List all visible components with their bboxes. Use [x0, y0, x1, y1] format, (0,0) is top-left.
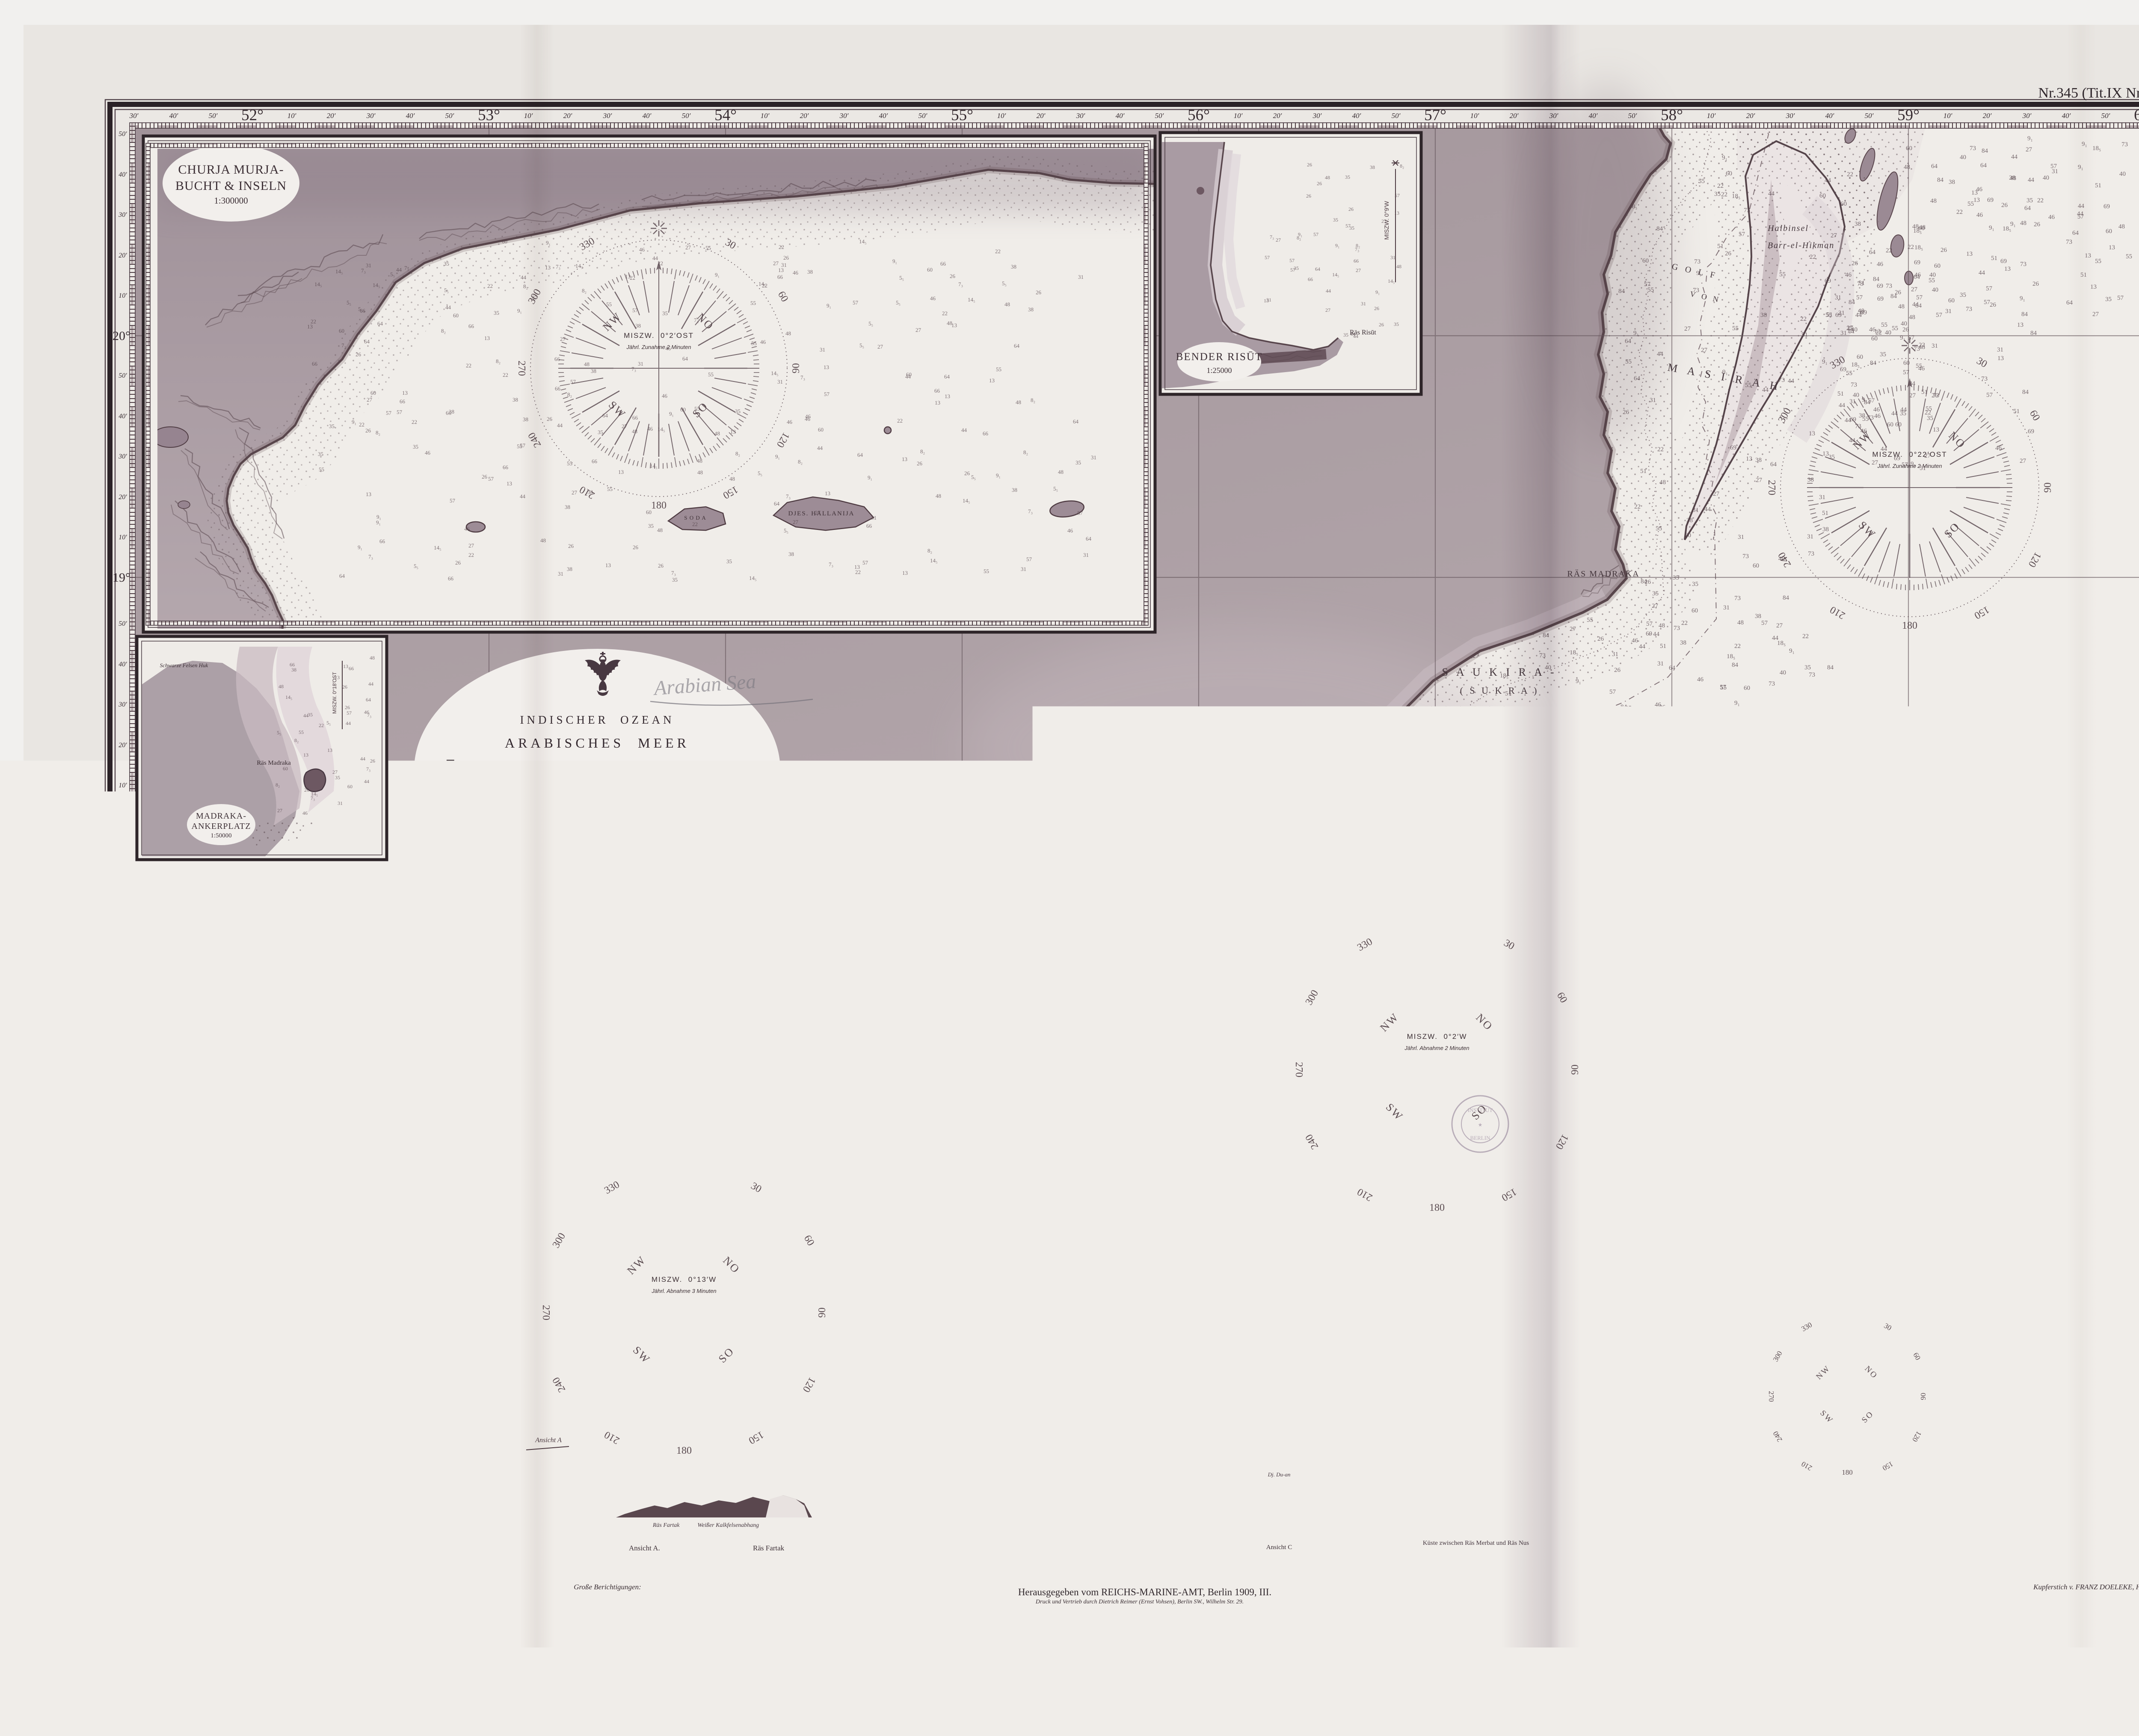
svg-text:53°: 53°: [478, 1556, 500, 1573]
svg-text:9₁: 9₁: [1158, 1024, 1164, 1031]
svg-text:51: 51: [454, 1439, 460, 1446]
svg-text:26: 26: [482, 473, 488, 480]
svg-text:13: 13: [902, 456, 907, 462]
svg-text:31: 31: [1692, 507, 1699, 514]
svg-text:57: 57: [1761, 620, 1768, 627]
svg-text:9₁: 9₁: [1989, 225, 1994, 231]
svg-text:9₁: 9₁: [1335, 243, 1339, 248]
svg-text:35: 35: [726, 558, 732, 565]
svg-text:57: 57: [2117, 295, 2124, 302]
svg-text:64: 64: [1869, 249, 1876, 256]
svg-text:22: 22: [1790, 1362, 1795, 1368]
svg-text:31: 31: [960, 1156, 966, 1163]
svg-text:57: 57: [824, 391, 830, 397]
svg-text:38: 38: [1807, 476, 1814, 483]
svg-text:84: 84: [898, 1211, 904, 1218]
svg-text:13: 13: [1973, 197, 1980, 204]
svg-text:64: 64: [1770, 461, 1777, 468]
svg-text:31: 31: [1932, 343, 1938, 349]
svg-text:84: 84: [1158, 1118, 1164, 1124]
svg-text:44: 44: [557, 422, 563, 429]
svg-text:84: 84: [1873, 276, 1880, 283]
svg-text:22: 22: [503, 372, 508, 378]
svg-text:27: 27: [1831, 232, 1837, 239]
svg-text:48: 48: [1058, 469, 1064, 475]
svg-text:51: 51: [1837, 390, 1844, 397]
svg-text:27: 27: [955, 1136, 962, 1143]
svg-text:13: 13: [1822, 450, 1829, 457]
svg-text:57: 57: [1868, 397, 1875, 404]
svg-text:9₁: 9₁: [2020, 295, 2025, 302]
svg-text:13: 13: [1967, 1414, 1972, 1420]
svg-text:35: 35: [1673, 574, 1679, 581]
svg-text:B U C H T: B U C H T: [1416, 730, 1499, 742]
svg-text:57: 57: [1096, 994, 1103, 1001]
svg-text:44: 44: [1762, 387, 1769, 393]
svg-text:1:300000: 1:300000: [214, 195, 248, 206]
svg-text:64: 64: [1216, 944, 1223, 951]
svg-text:64: 64: [1216, 1115, 1223, 1121]
svg-text:13: 13: [1928, 1335, 1933, 1341]
svg-text:38: 38: [1822, 526, 1829, 533]
svg-text:90: 90: [2042, 482, 2053, 493]
svg-text:44: 44: [364, 778, 369, 784]
svg-text:66: 66: [554, 356, 560, 362]
svg-text:84: 84: [852, 1213, 859, 1220]
svg-text:73: 73: [610, 1339, 616, 1346]
svg-text:10′: 10′: [1707, 1561, 1716, 1569]
svg-text:40′: 40′: [879, 112, 888, 120]
svg-text:66: 66: [1875, 1143, 1881, 1149]
svg-text:30′: 30′: [1786, 1561, 1795, 1569]
svg-text:60: 60: [1744, 685, 1750, 692]
svg-text:22: 22: [468, 552, 474, 558]
svg-text:31: 31: [1390, 254, 1395, 260]
svg-text:26: 26: [342, 684, 347, 690]
svg-text:30′: 30′: [839, 1561, 849, 1569]
svg-text:46: 46: [793, 269, 799, 276]
svg-text:48: 48: [1737, 619, 1744, 626]
svg-text:40: 40: [911, 1271, 918, 1278]
svg-text:7₃: 7₃: [1882, 1269, 1887, 1275]
svg-text:31: 31: [443, 1385, 450, 1392]
svg-text:40′: 40′: [1352, 1561, 1361, 1569]
svg-text:9₁: 9₁: [1633, 330, 1639, 337]
svg-text:30′: 30′: [603, 1561, 612, 1569]
svg-text:Bender Risut: Bender Risut: [723, 1071, 766, 1079]
svg-text:MADRAKA-: MADRAKA-: [196, 811, 246, 821]
svg-text:Räs: Räs: [163, 937, 173, 944]
svg-text:Halbinsel: Halbinsel: [1767, 224, 1809, 233]
svg-text:55: 55: [996, 366, 1001, 373]
svg-text:Herausgegeben vom REICHS-MARIN: Herausgegeben vom REICHS-MARINE-AMT, Ber…: [1018, 1587, 1271, 1597]
svg-text:13: 13: [989, 377, 995, 384]
svg-text:44: 44: [1253, 1124, 1260, 1130]
svg-text:20′: 20′: [119, 742, 127, 749]
svg-text:Bandar: Bandar: [163, 946, 182, 953]
svg-text:22: 22: [1346, 674, 1352, 680]
svg-text:50′: 50′: [445, 1561, 454, 1569]
svg-text:60: 60: [818, 426, 824, 433]
svg-text:57: 57: [488, 476, 494, 482]
svg-text:40: 40: [1960, 154, 1966, 161]
svg-text:REICHS-MARINE-AMT: REICHS-MARINE-AMT: [281, 1640, 367, 1647]
svg-text:55: 55: [607, 486, 613, 492]
svg-text:1:50000: 1:50000: [210, 832, 231, 839]
svg-text:66: 66: [1795, 1458, 1800, 1464]
svg-text:38: 38: [999, 1193, 1005, 1200]
svg-text:60: 60: [1596, 744, 1603, 751]
svg-text:46: 46: [1075, 1000, 1082, 1007]
svg-text:S O D A: S O D A: [684, 515, 706, 521]
svg-text:84: 84: [1621, 704, 1627, 710]
svg-text:55: 55: [1723, 756, 1730, 763]
svg-text:35: 35: [946, 1191, 953, 1198]
svg-text:60: 60: [1049, 1178, 1055, 1185]
svg-text:7₃: 7₃: [786, 493, 791, 500]
svg-text:22: 22: [1657, 446, 1664, 453]
svg-text:MISZW. 0°18′OST: MISZW. 0°18′OST: [332, 671, 338, 713]
svg-text:55: 55: [396, 1166, 403, 1173]
svg-text:27: 27: [572, 489, 578, 496]
svg-text:44: 44: [346, 720, 351, 726]
svg-text:22: 22: [1802, 633, 1809, 640]
svg-text:Abkürzungen und Sprachliches: Abkürzungen und Sprachliches: [144, 900, 230, 908]
svg-text:51: 51: [1822, 510, 1828, 517]
svg-text:44: 44: [1747, 707, 1754, 714]
svg-text:10′: 10′: [1470, 112, 1479, 120]
svg-text:64: 64: [1092, 1028, 1099, 1035]
svg-text:38: 38: [1144, 1106, 1150, 1112]
svg-text:10′: 10′: [119, 1511, 127, 1518]
svg-text:64: 64: [944, 373, 950, 380]
svg-text:48: 48: [1667, 722, 1673, 729]
svg-text:48: 48: [1325, 174, 1330, 180]
svg-text:48: 48: [1614, 781, 1621, 788]
svg-text:44: 44: [360, 756, 365, 762]
svg-text:38: 38: [1822, 1398, 1827, 1404]
svg-text:90: 90: [817, 1307, 828, 1318]
svg-text:18₅: 18₅: [1183, 1135, 1192, 1142]
svg-text:27: 27: [1909, 392, 1916, 399]
svg-text:22: 22: [412, 419, 417, 425]
svg-text:55: 55: [931, 1112, 937, 1118]
svg-text:9₁: 9₁: [715, 272, 720, 278]
svg-text:35: 35: [1344, 645, 1350, 652]
svg-text:13: 13: [605, 562, 611, 568]
svg-text:14₅: 14₅: [1854, 1128, 1861, 1134]
svg-text:38: 38: [567, 566, 572, 572]
svg-text:38: 38: [1363, 804, 1370, 811]
svg-text:9₁: 9₁: [1789, 648, 1795, 654]
svg-text:59°: 59°: [1897, 1556, 1920, 1573]
svg-text:30′: 30′: [1786, 112, 1795, 120]
svg-text:44: 44: [961, 427, 967, 433]
svg-text:13: 13: [1449, 728, 1456, 735]
svg-text:35: 35: [444, 260, 449, 267]
svg-text:60: 60: [658, 1328, 665, 1334]
svg-text:40: 40: [2119, 171, 2126, 177]
svg-text:55: 55: [1745, 382, 1751, 389]
svg-text:44: 44: [905, 373, 911, 380]
svg-text:9₁: 9₁: [1257, 1153, 1262, 1160]
svg-text:84: 84: [1618, 288, 1625, 295]
svg-text:48: 48: [1207, 1180, 1214, 1187]
svg-text:40′: 40′: [1116, 112, 1125, 120]
svg-text:38: 38: [1755, 457, 1762, 464]
svg-text:46: 46: [464, 526, 470, 532]
svg-text:48: 48: [1028, 1032, 1034, 1039]
svg-text:51: 51: [1261, 1211, 1267, 1218]
svg-text:9₁: 9₁: [486, 1243, 492, 1250]
svg-text:18₅: 18₅: [1777, 640, 1786, 647]
svg-text:44: 44: [1768, 190, 1775, 197]
svg-text:35: 35: [1333, 217, 1338, 223]
svg-text:48: 48: [1961, 1285, 1966, 1291]
svg-text:27: 27: [277, 807, 282, 813]
svg-text:40′: 40′: [1825, 1561, 1834, 1569]
svg-text:26: 26: [658, 562, 664, 569]
svg-text:55: 55: [1846, 370, 1852, 377]
svg-text:40′: 40′: [1825, 112, 1834, 120]
svg-text:51: 51: [1034, 1326, 1040, 1333]
svg-text:35: 35: [1343, 332, 1348, 338]
svg-text:30′: 30′: [839, 112, 849, 120]
svg-text:84: 84: [1195, 1128, 1202, 1135]
svg-text:35: 35: [648, 523, 654, 529]
svg-text:10′: 10′: [761, 1561, 770, 1569]
svg-text:46: 46: [495, 1207, 502, 1214]
svg-text:31: 31: [428, 1445, 434, 1452]
svg-text:14₅: 14₅: [285, 694, 292, 700]
svg-text:44: 44: [635, 1315, 642, 1322]
svg-text:13: 13: [1363, 687, 1370, 694]
svg-text:30′: 30′: [366, 1561, 376, 1569]
svg-text:55: 55: [387, 1239, 394, 1246]
svg-text:73: 73: [1778, 377, 1785, 384]
svg-text:66: 66: [592, 458, 598, 464]
svg-text:20′: 20′: [1983, 112, 1992, 120]
svg-text:46: 46: [760, 339, 766, 345]
svg-text:13: 13: [1821, 1180, 1826, 1186]
svg-text:10′: 10′: [1234, 112, 1243, 120]
svg-text:38: 38: [1751, 742, 1758, 749]
svg-text:30′: 30′: [118, 211, 127, 219]
svg-text:7₃: 7₃: [368, 553, 373, 560]
svg-text:26: 26: [1902, 326, 1909, 333]
svg-text:40′: 40′: [119, 661, 127, 668]
svg-text:73: 73: [1052, 940, 1058, 946]
svg-text:26: 26: [950, 273, 956, 279]
svg-text:20′: 20′: [119, 1470, 127, 1478]
svg-text:48: 48: [1659, 479, 1666, 486]
svg-text:30′: 30′: [603, 112, 612, 120]
svg-text:7₃: 7₃: [1355, 246, 1359, 252]
svg-text:57: 57: [1676, 1216, 1683, 1223]
svg-text:20′: 20′: [1037, 112, 1046, 120]
svg-text:26: 26: [1614, 667, 1621, 674]
svg-text:64: 64: [460, 1229, 467, 1236]
svg-text:55: 55: [708, 371, 714, 378]
svg-text:73: 73: [1320, 1250, 1327, 1257]
svg-text:64: 64: [1323, 765, 1330, 772]
svg-text:20′: 20′: [563, 1561, 572, 1569]
svg-text:31: 31: [1945, 308, 1952, 315]
svg-text:27: 27: [2020, 458, 2026, 464]
svg-text:64: 64: [1067, 1022, 1074, 1029]
svg-text:13: 13: [366, 491, 371, 497]
svg-text:14₅: 14₅: [758, 281, 766, 287]
svg-text:22: 22: [1681, 620, 1688, 627]
svg-text:10′: 10′: [1943, 1561, 1952, 1569]
svg-text:69: 69: [1468, 802, 1475, 809]
svg-text:8₂: 8₂: [798, 458, 803, 465]
svg-text:40′: 40′: [119, 1148, 127, 1156]
svg-text:46: 46: [1632, 637, 1638, 644]
svg-text:48: 48: [1919, 344, 1925, 351]
svg-text:7₃: 7₃: [1878, 1211, 1883, 1217]
svg-text:46: 46: [1821, 1200, 1826, 1206]
svg-text:35: 35: [2105, 296, 2112, 303]
svg-text:57: 57: [1132, 1349, 1138, 1356]
svg-text:18₅: 18₅: [1141, 1099, 1149, 1106]
svg-text:27: 27: [793, 519, 799, 525]
svg-text:26: 26: [1307, 162, 1312, 168]
svg-text:31: 31: [1228, 1166, 1235, 1173]
svg-text:8₂: 8₂: [276, 782, 280, 788]
svg-text:27: 27: [1276, 237, 1281, 243]
svg-text:46: 46: [928, 1153, 935, 1160]
svg-text:30′: 30′: [366, 112, 376, 120]
svg-text:13: 13: [824, 364, 829, 370]
svg-text:18₅: 18₅: [1656, 730, 1665, 736]
svg-text:69: 69: [1737, 758, 1743, 765]
svg-text:40′: 40′: [119, 171, 127, 178]
svg-text:35: 35: [1294, 265, 1299, 271]
svg-text:60: 60: [1060, 1200, 1067, 1207]
svg-text:44: 44: [1657, 351, 1664, 358]
svg-text:57: 57: [1345, 223, 1351, 229]
svg-text:7₃: 7₃: [361, 267, 366, 274]
svg-text:10′: 10′: [119, 782, 127, 789]
svg-text:8₂: 8₂: [735, 450, 740, 457]
svg-text:69: 69: [1105, 1176, 1111, 1183]
svg-text:9₁: 9₁: [1862, 1231, 1866, 1237]
svg-text:58°: 58°: [1661, 106, 1683, 124]
svg-text:13: 13: [506, 1200, 513, 1207]
svg-text:30′: 30′: [118, 701, 127, 708]
svg-text:31: 31: [820, 346, 825, 353]
svg-text:Für das Land- u. Seegebiet:: Für das Land- u. Seegebiet:: [144, 879, 219, 886]
svg-text:73: 73: [1970, 145, 1976, 152]
svg-text:48: 48: [1120, 1149, 1126, 1156]
svg-text:60: 60: [1642, 257, 1649, 264]
svg-text:9₁: 9₁: [1811, 1216, 1815, 1222]
svg-text:270: 270: [1293, 1062, 1304, 1077]
svg-text:44: 44: [396, 266, 402, 273]
svg-text:Djes.Kablija: Djes.Kablija: [1258, 945, 1290, 952]
svg-text:31: 31: [638, 361, 643, 367]
svg-text:22: 22: [1886, 247, 1892, 254]
svg-text:51: 51: [1152, 948, 1159, 955]
svg-text:8₂: 8₂: [496, 358, 501, 364]
svg-text:40′: 40′: [119, 413, 127, 420]
svg-text:31: 31: [1840, 330, 1847, 337]
svg-text:14₅: 14₅: [963, 497, 970, 504]
svg-text:35: 35: [1880, 351, 1886, 358]
svg-text:57: 57: [1609, 689, 1616, 695]
svg-text:35: 35: [1793, 1127, 1798, 1133]
svg-text:84: 84: [411, 1237, 418, 1244]
svg-text:38: 38: [291, 667, 296, 673]
svg-text:31: 31: [1366, 621, 1372, 627]
svg-text:27: 27: [367, 396, 373, 403]
svg-text:73: 73: [1173, 1346, 1179, 1353]
svg-text:15°: 15°: [113, 1547, 130, 1562]
svg-text:BENDER RISŪT: BENDER RISŪT: [1176, 351, 1262, 363]
svg-text:9₁: 9₁: [376, 519, 381, 526]
svg-text:46: 46: [662, 393, 668, 399]
svg-text:64: 64: [1021, 963, 1028, 970]
svg-text:26: 26: [926, 1377, 933, 1384]
svg-text:31: 31: [1612, 651, 1618, 658]
svg-text:31: 31: [1091, 454, 1096, 461]
svg-text:40′: 40′: [1352, 112, 1361, 120]
svg-text:46: 46: [1845, 272, 1852, 278]
svg-text:40: 40: [1932, 287, 1938, 293]
svg-text:40: 40: [2043, 174, 2049, 181]
svg-text:51: 51: [1717, 243, 1724, 250]
svg-text:Acc No : M2006 - 00315 - BL: Acc No : M2006 - 00315 - BL: [1986, 1676, 2139, 1697]
svg-text:20′: 20′: [119, 1229, 127, 1236]
svg-text:48: 48: [1016, 399, 1021, 405]
svg-text:22: 22: [1800, 316, 1807, 322]
svg-text:51: 51: [1629, 1221, 1635, 1227]
svg-text:38: 38: [1680, 639, 1686, 646]
svg-text:64: 64: [1409, 678, 1416, 685]
svg-text:35: 35: [335, 775, 340, 781]
svg-text:69: 69: [1253, 1289, 1259, 1295]
svg-text:27: 27: [468, 542, 474, 549]
svg-text:64: 64: [1634, 375, 1641, 382]
svg-text:38: 38: [1028, 306, 1034, 313]
svg-text:26: 26: [958, 1095, 965, 1102]
svg-text:7₃: 7₃: [800, 374, 805, 381]
svg-text:35: 35: [1086, 969, 1092, 976]
svg-text:53°: 53°: [478, 106, 500, 124]
svg-text:90: 90: [1919, 1393, 1927, 1400]
svg-text:38: 38: [1949, 179, 1955, 186]
svg-text:180: 180: [676, 1445, 692, 1456]
svg-text:Golf, Bucht: Golf, Bucht: [198, 929, 226, 935]
svg-text:9₁: 9₁: [948, 1099, 953, 1106]
svg-text:Große Berichtigungen:: Große Berichtigungen:: [574, 1583, 641, 1591]
svg-text:10′: 10′: [119, 1269, 127, 1277]
svg-text:26: 26: [589, 1155, 596, 1162]
svg-text:31: 31: [1480, 786, 1486, 793]
svg-text:7₃: 7₃: [958, 281, 963, 287]
svg-text:27: 27: [332, 769, 338, 775]
svg-text:National Archives of Singapore: National Archives of Singapore: [240, 815, 2028, 940]
svg-text:26: 26: [1725, 250, 1732, 257]
svg-text:22: 22: [487, 283, 493, 289]
svg-text:8₂: 8₂: [441, 328, 446, 334]
svg-text:13: 13: [307, 323, 313, 330]
svg-text:48: 48: [1100, 1022, 1106, 1029]
svg-text:40: 40: [433, 1156, 439, 1163]
svg-text:60: 60: [1288, 1384, 1295, 1391]
svg-text:18₅: 18₅: [1044, 957, 1053, 964]
